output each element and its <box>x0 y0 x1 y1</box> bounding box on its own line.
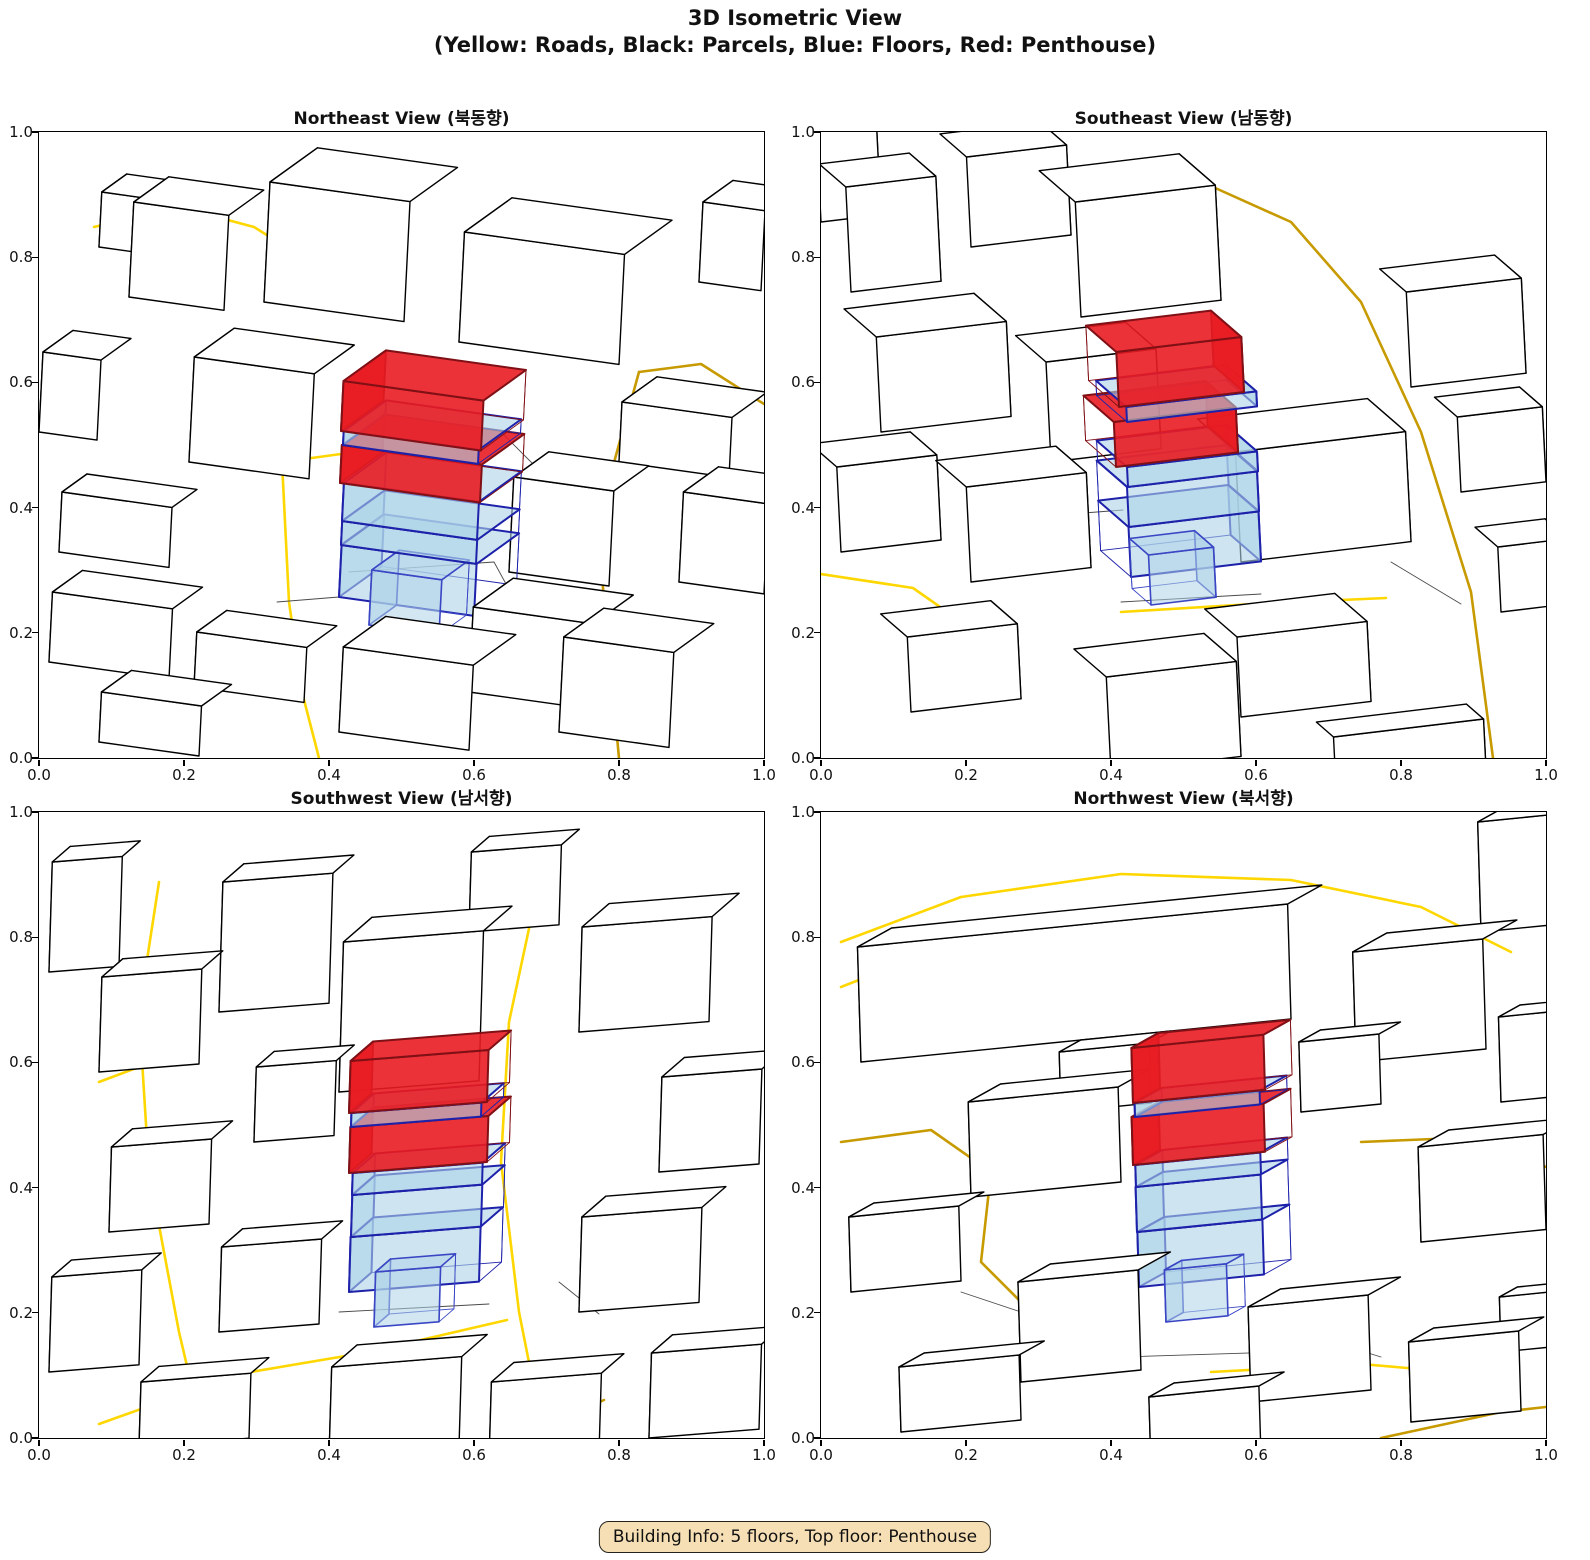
x-tick-label: 0.6 <box>452 1446 496 1464</box>
building-box-front <box>139 1373 251 1438</box>
floor-box-front <box>1164 1264 1228 1322</box>
panel-title: Northeast View (북동향) <box>39 104 764 129</box>
building-box-front <box>968 1087 1121 1197</box>
parcel-line <box>1391 562 1461 604</box>
x-tick-label: 0.0 <box>17 766 61 784</box>
building-box-front <box>846 176 941 292</box>
building-box-front <box>699 202 764 291</box>
x-tick-mark <box>328 1440 329 1446</box>
y-tick-mark <box>32 757 38 758</box>
building-box-front <box>264 182 410 322</box>
y-tick-label: 0.2 <box>0 1304 33 1322</box>
building-box-roof <box>52 841 140 862</box>
x-tick-mark <box>183 1440 184 1446</box>
building-box-front <box>254 1061 336 1142</box>
building-box-front <box>329 1357 462 1438</box>
x-tick-mark <box>965 760 966 766</box>
y-tick-label: 0.8 <box>0 248 33 266</box>
x-tick-label: 1.0 <box>1524 766 1568 784</box>
x-tick-mark <box>1400 1440 1401 1446</box>
panel-title: Northwest View (북서향) <box>821 784 1546 809</box>
building-box-roof <box>1475 519 1546 547</box>
isometric-scene-southwest <box>39 812 764 1438</box>
building-box-front <box>579 1207 702 1312</box>
parcel-line <box>961 1292 1021 1312</box>
x-tick-mark <box>1110 760 1111 766</box>
building-box-front <box>99 969 202 1072</box>
x-tick-mark <box>820 1440 821 1446</box>
panel-title: Southeast View (남동향) <box>821 104 1546 129</box>
y-tick-label: 0.6 <box>0 1053 33 1071</box>
y-tick-mark <box>32 937 38 938</box>
x-tick-mark <box>38 760 39 766</box>
y-tick-label: 1.0 <box>775 123 815 141</box>
x-tick-label: 0.8 <box>597 766 641 784</box>
panel-southwest-view: Southwest View (남서향) 0.00.20.40.60.81.01… <box>38 811 765 1439</box>
x-tick-label: 0.4 <box>307 1446 351 1464</box>
building-box-front <box>876 321 1011 432</box>
panel-title: Southwest View (남서향) <box>39 784 764 809</box>
building-box-front <box>1237 621 1371 717</box>
x-tick-mark <box>763 760 764 766</box>
y-tick-label: 0.2 <box>775 1304 815 1322</box>
building-box-front <box>1236 432 1412 562</box>
x-tick-mark <box>473 1440 474 1446</box>
building-box-front <box>837 455 941 552</box>
y-tick-mark <box>32 811 38 812</box>
building-box-front <box>189 357 314 479</box>
x-tick-mark <box>618 760 619 766</box>
building-box-front <box>649 1344 762 1438</box>
x-tick-label: 0.2 <box>162 1446 206 1464</box>
y-tick-label: 0.8 <box>0 928 33 946</box>
y-tick-mark <box>814 507 820 508</box>
y-tick-label: 0.4 <box>775 499 815 517</box>
x-tick-label: 0.4 <box>307 766 351 784</box>
y-tick-label: 0.2 <box>775 624 815 642</box>
x-tick-mark <box>1255 760 1256 766</box>
x-tick-mark <box>820 760 821 766</box>
y-tick-label: 0.6 <box>775 1053 815 1071</box>
panel-northeast-view: Northeast View (북동향) 0.00.20.40.60.81.01… <box>38 131 765 759</box>
floor-box-front <box>1149 547 1217 605</box>
building-box-front <box>907 624 1021 712</box>
x-tick-mark <box>1545 1440 1546 1446</box>
y-tick-label: 1.0 <box>0 123 33 141</box>
x-tick-label: 0.2 <box>162 766 206 784</box>
x-tick-mark <box>1255 1440 1256 1446</box>
y-tick-label: 0.4 <box>775 1179 815 1197</box>
building-box-front <box>559 637 674 747</box>
y-tick-label: 0.0 <box>775 749 815 767</box>
y-tick-label: 1.0 <box>775 803 815 821</box>
building-box-front <box>967 145 1072 247</box>
y-tick-label: 0.0 <box>775 1429 815 1447</box>
building-box-front <box>1418 1135 1546 1243</box>
x-tick-mark <box>763 1440 764 1446</box>
x-tick-mark <box>328 760 329 766</box>
x-tick-mark <box>38 1440 39 1446</box>
building-box-front <box>966 473 1091 582</box>
x-tick-label: 0.2 <box>944 766 988 784</box>
building-box-front <box>679 492 764 594</box>
building-box-front <box>849 1206 961 1292</box>
building-box-front <box>1248 1295 1371 1402</box>
y-tick-label: 0.4 <box>0 499 33 517</box>
panel-southeast-view: Southeast View (남동향) 0.00.20.40.60.81.01… <box>820 131 1547 759</box>
y-tick-mark <box>32 1187 38 1188</box>
y-tick-mark <box>32 382 38 383</box>
isometric-scene-northwest <box>821 812 1546 1438</box>
y-tick-mark <box>814 382 820 383</box>
y-tick-label: 0.6 <box>775 373 815 391</box>
y-tick-mark <box>32 131 38 132</box>
x-tick-label: 0.4 <box>1089 1446 1133 1464</box>
parcel-line <box>277 597 339 602</box>
y-tick-label: 0.2 <box>0 624 33 642</box>
y-tick-label: 0.4 <box>0 1179 33 1197</box>
building-box-front <box>899 1355 1021 1432</box>
y-tick-label: 1.0 <box>0 803 33 821</box>
y-tick-mark <box>32 257 38 258</box>
building-box-front <box>579 917 712 1032</box>
building-box-front <box>219 873 333 1012</box>
building-box-front <box>1499 1011 1547 1102</box>
y-tick-mark <box>814 1437 820 1438</box>
building-info-box: Building Info: 5 floors, Top floor: Pent… <box>599 1521 991 1553</box>
figure-title: 3D Isometric View <box>0 6 1590 30</box>
figure-legend-subtitle: (Yellow: Roads, Black: Parcels, Blue: Fl… <box>0 33 1590 57</box>
building-box-front <box>459 232 625 364</box>
isometric-scene-southeast <box>821 132 1546 758</box>
building-box-front <box>1498 539 1546 612</box>
x-tick-label: 1.0 <box>742 766 786 784</box>
figure: 3D Isometric View (Yellow: Roads, Black:… <box>0 0 1590 1560</box>
y-tick-mark <box>814 1187 820 1188</box>
building-box-front <box>489 1373 601 1438</box>
building-box-front <box>1406 278 1526 387</box>
building-box-front <box>1457 407 1546 492</box>
y-tick-mark <box>814 1062 820 1063</box>
y-tick-label: 0.8 <box>775 928 815 946</box>
building-box-front <box>509 477 614 586</box>
building-box-front <box>1018 1270 1141 1382</box>
building-box-front <box>39 352 101 440</box>
x-tick-label: 0.4 <box>1089 766 1133 784</box>
building-box-front <box>1409 1331 1521 1422</box>
y-tick-mark <box>32 1312 38 1313</box>
x-tick-label: 0.6 <box>452 766 496 784</box>
y-tick-mark <box>32 507 38 508</box>
y-tick-mark <box>814 937 820 938</box>
x-tick-mark <box>473 760 474 766</box>
building-box-front <box>129 202 229 310</box>
x-tick-label: 0.8 <box>1379 1446 1423 1464</box>
building-box-front <box>49 1270 142 1372</box>
isometric-scene-northeast <box>39 132 764 758</box>
building-box-front <box>1299 1034 1381 1112</box>
y-tick-mark <box>814 757 820 758</box>
x-tick-mark <box>618 1440 619 1446</box>
x-tick-label: 0.6 <box>1234 1446 1278 1464</box>
x-tick-mark <box>1400 760 1401 766</box>
y-tick-mark <box>32 632 38 633</box>
y-tick-mark <box>814 811 820 812</box>
y-tick-mark <box>814 1312 820 1313</box>
building-box-front <box>1075 185 1221 317</box>
x-tick-label: 1.0 <box>742 1446 786 1464</box>
building-box-front <box>659 1069 762 1172</box>
road-line <box>501 882 544 1438</box>
x-tick-mark <box>1110 1440 1111 1446</box>
building-box-front <box>1106 661 1241 758</box>
y-tick-label: 0.0 <box>0 749 33 767</box>
panel-northwest-view: Northwest View (북서향) 0.00.20.40.60.81.01… <box>820 811 1547 1439</box>
floor-box-front <box>374 1267 441 1327</box>
y-tick-mark <box>32 1062 38 1063</box>
y-tick-label: 0.0 <box>0 1429 33 1447</box>
y-tick-mark <box>814 632 820 633</box>
x-tick-label: 0.8 <box>1379 766 1423 784</box>
building-box-front <box>109 1139 212 1232</box>
x-tick-mark <box>1545 760 1546 766</box>
y-tick-mark <box>814 131 820 132</box>
y-tick-mark <box>814 257 820 258</box>
x-tick-label: 0.0 <box>17 1446 61 1464</box>
x-tick-mark <box>183 760 184 766</box>
x-tick-label: 1.0 <box>1524 1446 1568 1464</box>
x-tick-label: 0.0 <box>799 766 843 784</box>
y-tick-label: 0.8 <box>775 248 815 266</box>
x-tick-label: 0.2 <box>944 1446 988 1464</box>
building-box-front <box>1478 815 1546 932</box>
building-box-front <box>49 856 122 972</box>
y-tick-label: 0.6 <box>0 373 33 391</box>
x-tick-label: 0.8 <box>597 1446 641 1464</box>
x-tick-label: 0.6 <box>1234 766 1278 784</box>
x-tick-mark <box>965 1440 966 1446</box>
y-tick-mark <box>32 1437 38 1438</box>
x-tick-label: 0.0 <box>799 1446 843 1464</box>
building-box-front <box>219 1239 322 1332</box>
